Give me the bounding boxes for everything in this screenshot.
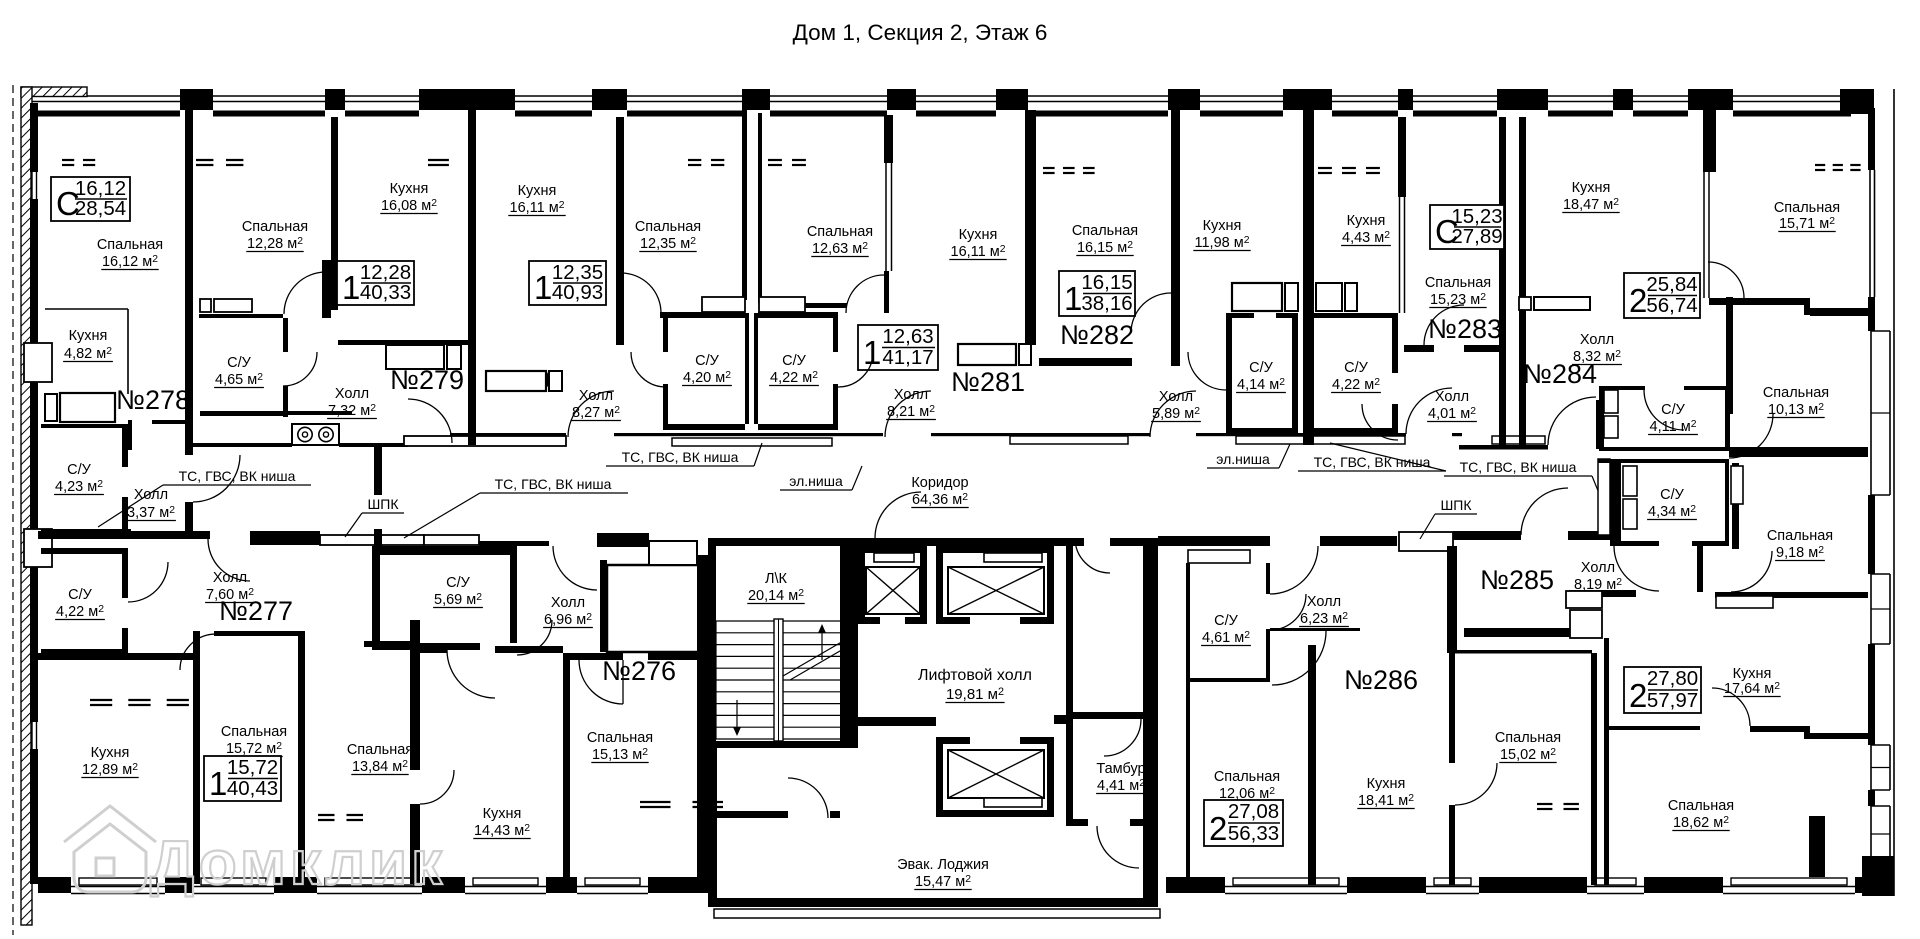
svg-text:С/У: С/У [1249,360,1274,376]
svg-text:№281: №281 [951,367,1025,397]
svg-text:Дом 1, Секция 2, Этаж 6: Дом 1, Секция 2, Этаж 6 [793,20,1048,45]
svg-text:Спальная: Спальная [347,742,413,758]
svg-text:10,13 м2: 10,13 м2 [1768,402,1824,418]
svg-text:4,20 м2: 4,20 м2 [683,370,731,386]
svg-text:15,72: 15,72 [227,756,278,779]
svg-text:Кухня: Кухня [1367,776,1406,792]
svg-text:С/У: С/У [1214,613,1239,629]
svg-text:4,14 м2: 4,14 м2 [1237,377,1285,393]
svg-text:6,23 м2: 6,23 м2 [1300,611,1348,627]
svg-text:С/У: С/У [1660,487,1685,503]
svg-text:ТС, ГВС, ВК ниша: ТС, ГВС, ВК ниша [622,449,739,465]
svg-text:С/У: С/У [446,575,471,591]
svg-text:16,12 м2: 16,12 м2 [102,254,158,270]
svg-text:40,43: 40,43 [227,777,278,800]
svg-text:Спальная: Спальная [221,724,287,740]
svg-text:№277: №277 [219,596,293,626]
svg-text:12,89 м2: 12,89 м2 [82,762,138,778]
svg-text:16,11 м2: 16,11 м2 [510,200,565,216]
svg-text:41,17: 41,17 [882,346,933,369]
svg-text:1: 1 [534,269,552,306]
svg-text:1: 1 [863,334,881,371]
svg-text:Кухня: Кухня [1733,666,1772,682]
svg-text:4,61 м2: 4,61 м2 [1202,630,1250,646]
svg-text:Холл: Холл [213,570,247,586]
svg-text:Спальная: Спальная [635,219,701,235]
svg-text:16,15 м2: 16,15 м2 [1077,240,1133,256]
svg-text:28,54: 28,54 [75,197,126,220]
svg-text:Спальная: Спальная [1425,275,1491,291]
svg-text:№278: №278 [116,385,190,415]
svg-text:ШПК: ШПК [1440,497,1472,513]
svg-text:Кухня: Кухня [390,181,429,197]
svg-text:С/У: С/У [695,353,720,369]
svg-text:ТС, ГВС, ВК ниша: ТС, ГВС, ВК ниша [495,476,612,492]
svg-text:16,15: 16,15 [1081,271,1132,294]
svg-text:Кухня: Кухня [1572,180,1611,196]
svg-text:С/У: С/У [1344,360,1369,376]
svg-text:5,69 м2: 5,69 м2 [434,592,482,608]
svg-text:Холл: Холл [134,487,168,503]
svg-text:12,35 м2: 12,35 м2 [640,236,696,252]
svg-text:Холл: Холл [1580,332,1614,348]
svg-text:Кухня: Кухня [91,745,130,761]
svg-text:Спальная: Спальная [1774,200,1840,216]
svg-text:№284: №284 [1523,359,1597,389]
svg-text:Спальная: Спальная [807,224,873,240]
svg-text:27,80: 27,80 [1647,667,1698,690]
svg-text:Спальная: Спальная [1668,798,1734,814]
svg-text:Спальная: Спальная [242,219,308,235]
svg-text:3,37 м2: 3,37 м2 [127,505,175,521]
svg-text:Холл: Холл [551,595,585,611]
svg-text:Спальная: Спальная [1495,730,1561,746]
svg-text:7,32 м2: 7,32 м2 [328,403,376,419]
svg-text:1: 1 [1064,280,1082,317]
svg-text:15,13 м2: 15,13 м2 [592,747,648,763]
svg-text:2: 2 [1209,810,1227,847]
svg-text:№285: №285 [1480,565,1554,595]
svg-text:2: 2 [1629,677,1647,714]
svg-text:25,84: 25,84 [1646,273,1697,296]
svg-text:12,63 м2: 12,63 м2 [812,241,868,257]
svg-text:27,89: 27,89 [1451,225,1502,248]
svg-text:15,71 м2: 15,71 м2 [1779,216,1835,232]
svg-text:4,01 м2: 4,01 м2 [1428,406,1476,422]
svg-text:4,22 м2: 4,22 м2 [1332,377,1380,393]
svg-text:С/У: С/У [67,462,92,478]
svg-text:2: 2 [1629,282,1647,319]
svg-text:4,82 м2: 4,82 м2 [64,346,112,362]
svg-text:№276: №276 [602,656,676,686]
svg-text:56,74: 56,74 [1646,294,1697,317]
svg-text:ТС, ГВС, ВК ниша: ТС, ГВС, ВК ниша [1314,454,1431,470]
svg-text:1: 1 [209,765,227,802]
svg-text:Спальная: Спальная [97,237,163,253]
svg-text:4,22 м2: 4,22 м2 [770,370,818,386]
svg-text:40,33: 40,33 [360,281,411,304]
svg-text:Эвак. Лоджия: Эвак. Лоджия [897,857,989,873]
svg-text:Спальная: Спальная [1767,528,1833,544]
svg-text:Кухня: Кухня [518,183,557,199]
svg-text:12,28 м2: 12,28 м2 [247,236,303,252]
svg-text:6,96 м2: 6,96 м2 [544,612,592,628]
svg-text:20,14 м2: 20,14 м2 [748,588,804,604]
svg-text:Холл: Холл [335,386,369,402]
svg-text:Спальная: Спальная [1214,769,1280,785]
svg-text:9,18 м2: 9,18 м2 [1776,545,1824,561]
svg-text:Холл: Холл [1435,389,1469,405]
svg-text:Домклик: Домклик [150,829,446,898]
svg-text:19,81 м2: 19,81 м2 [946,686,1004,703]
svg-text:Кухня: Кухня [1347,213,1386,229]
svg-text:15,47 м2: 15,47 м2 [915,874,971,890]
svg-text:57,97: 57,97 [1647,689,1698,712]
svg-text:40,93: 40,93 [552,281,603,304]
svg-text:56,33: 56,33 [1228,822,1279,845]
svg-text:4,65 м2: 4,65 м2 [215,372,263,388]
svg-text:№286: №286 [1344,665,1418,695]
svg-text:С/У: С/У [68,587,93,603]
svg-text:Тамбур: Тамбур [1096,761,1145,777]
svg-text:18,47 м2: 18,47 м2 [1563,197,1619,213]
svg-text:64,36 м2: 64,36 м2 [912,492,968,508]
svg-text:Кухня: Кухня [483,806,522,822]
svg-text:18,41 м2: 18,41 м2 [1358,793,1414,809]
svg-text:4,41 м2: 4,41 м2 [1097,778,1145,794]
svg-text:ТС, ГВС, ВК ниша: ТС, ГВС, ВК ниша [1460,459,1577,475]
svg-text:15,72 м2: 15,72 м2 [226,741,282,757]
svg-text:ШПК: ШПК [367,496,399,512]
svg-text:16,11 м2: 16,11 м2 [951,244,1006,260]
svg-text:Холл: Холл [1307,594,1341,610]
svg-text:18,62 м2: 18,62 м2 [1673,815,1729,831]
svg-text:Кухня: Кухня [1203,218,1242,234]
svg-text:Кухня: Кухня [959,227,998,243]
svg-text:Лифтовой холл: Лифтовой холл [918,667,1032,684]
svg-text:12,63: 12,63 [882,325,933,348]
svg-text:эл.ниша: эл.ниша [789,473,843,489]
svg-text:4,22 м2: 4,22 м2 [56,604,104,620]
svg-text:4,11 м2: 4,11 м2 [1650,419,1697,435]
svg-text:С/У: С/У [782,353,807,369]
svg-text:4,23 м2: 4,23 м2 [55,479,103,495]
svg-text:Спальная: Спальная [1072,223,1138,239]
svg-text:№283: №283 [1428,314,1502,344]
svg-text:Холл: Холл [1581,560,1615,576]
svg-text:№282: №282 [1060,320,1134,350]
svg-text:Л\К: Л\К [765,571,788,587]
svg-text:С/У: С/У [1661,402,1686,418]
svg-text:4,43 м2: 4,43 м2 [1342,230,1390,246]
svg-text:38,16: 38,16 [1081,292,1132,315]
svg-text:27,08: 27,08 [1228,800,1279,823]
svg-text:Спальная: Спальная [1763,385,1829,401]
svg-text:8,21 м2: 8,21 м2 [887,404,935,420]
svg-text:№279: №279 [390,365,464,395]
svg-text:4,34 м2: 4,34 м2 [1648,504,1696,520]
svg-text:Кухня: Кухня [69,328,108,344]
svg-text:Коридор: Коридор [911,475,968,491]
svg-text:11,98 м2: 11,98 м2 [1195,235,1250,251]
svg-text:С/У: С/У [227,355,252,371]
svg-text:16,08 м2: 16,08 м2 [381,198,437,214]
svg-text:1: 1 [342,269,360,306]
svg-text:15,02 м2: 15,02 м2 [1500,747,1556,763]
svg-text:эл.ниша: эл.ниша [1216,451,1270,467]
svg-text:14,43 м2: 14,43 м2 [474,823,530,839]
svg-text:13,84 м2: 13,84 м2 [352,759,408,775]
svg-text:Спальная: Спальная [587,730,653,746]
